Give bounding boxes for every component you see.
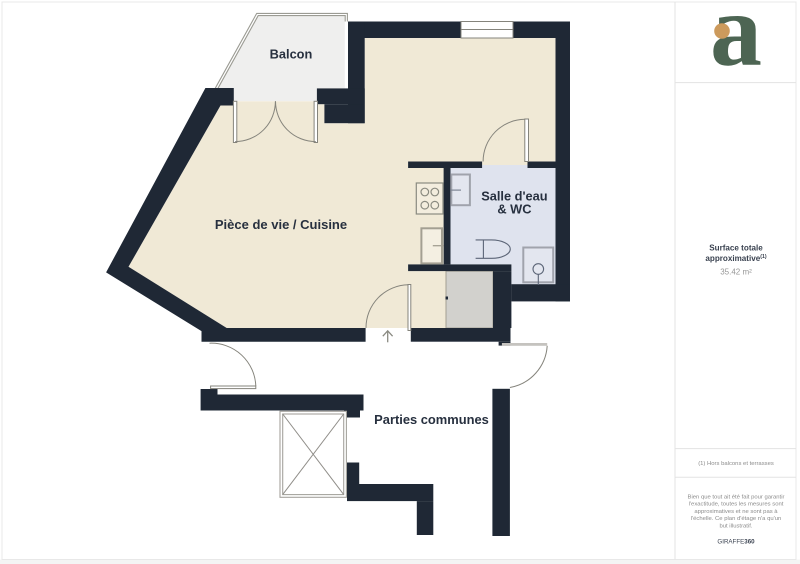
svg-text:approximative(1): approximative(1) [705,254,767,263]
svg-text:Pièce de vie / Cuisine: Pièce de vie / Cuisine [215,217,347,232]
svg-text:l'exactitude, toutes les mesur: l'exactitude, toutes les mesures sont [689,502,784,508]
svg-text:Balcon: Balcon [270,47,313,62]
svg-text:(1) Hors balcons et terrasses: (1) Hors balcons et terrasses [698,461,774,467]
svg-text:Surface totale: Surface totale [709,243,763,252]
svg-text:but illustratif.: but illustratif. [719,524,752,530]
svg-text:approximatives et ne sont pas: approximatives et ne sont pas à [694,509,778,515]
svg-text:35.42 m²: 35.42 m² [720,268,752,277]
svg-text:& WC: & WC [497,202,531,217]
svg-text:Parties communes: Parties communes [374,412,489,427]
svg-text:a: a [710,0,762,88]
svg-text:Bien que tout ait été fait pou: Bien que tout ait été fait pour garantir [688,494,785,500]
svg-text:GIRAFFE360: GIRAFFE360 [717,539,755,546]
svg-text:l'échelle. Ce plan d'étage n'a: l'échelle. Ce plan d'étage n'a qu'un [691,516,782,522]
